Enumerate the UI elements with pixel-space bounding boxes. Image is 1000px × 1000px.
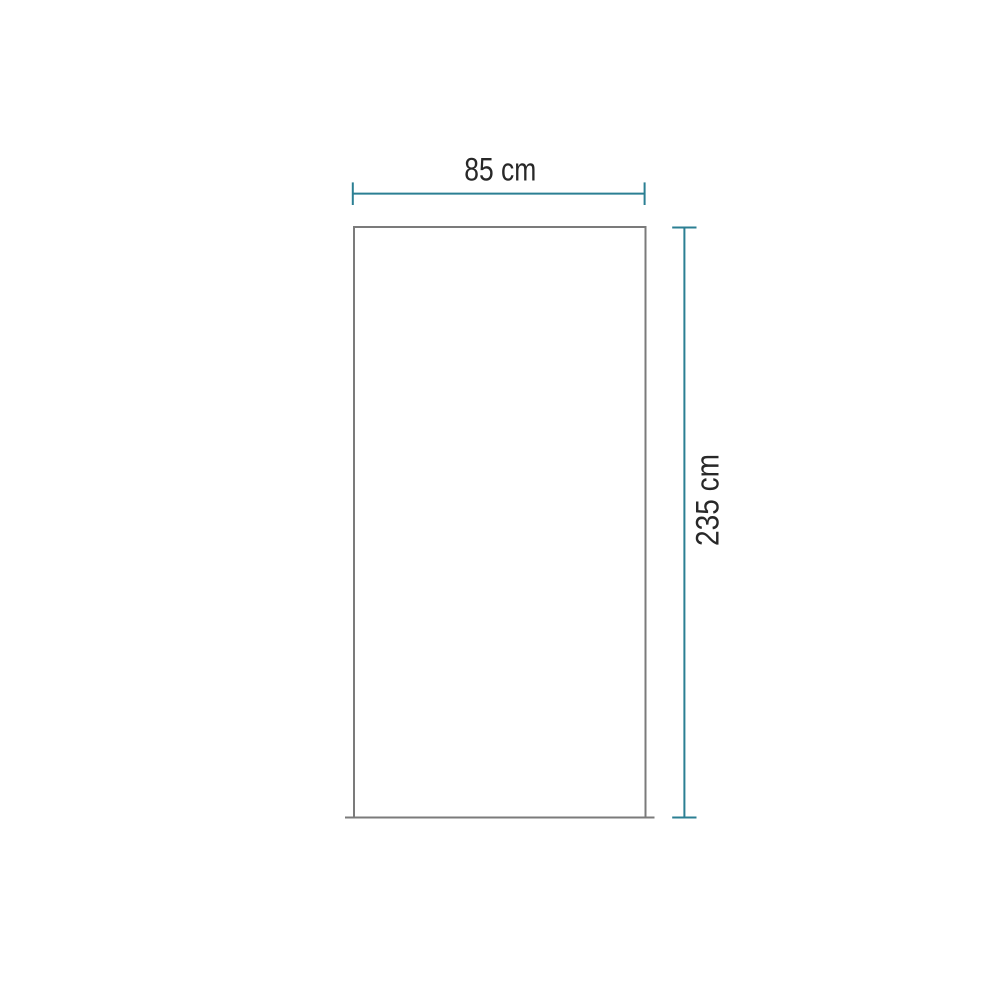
svg-text:235 cm: 235 cm xyxy=(690,454,726,546)
svg-text:85 cm: 85 cm xyxy=(464,152,536,188)
